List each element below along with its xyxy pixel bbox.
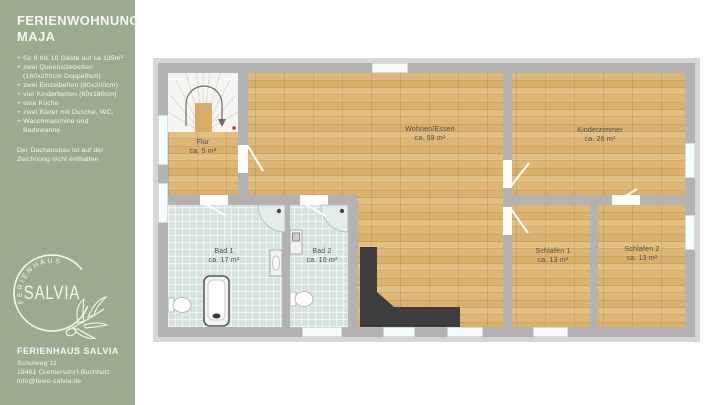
room-name: Bad 1 — [179, 248, 269, 257]
window-bottom-kueche — [383, 327, 415, 337]
room-area: ca. 59 m² — [385, 135, 475, 144]
wall-bad1-bad2 — [282, 205, 290, 327]
door-kinderzimmer — [503, 160, 512, 188]
window-bottom-wohnen — [447, 327, 483, 337]
wall-wohnen-kinder-mid — [503, 188, 512, 207]
room-area: ca. 13 m² — [597, 255, 687, 264]
room-name: Schlafen 1 — [508, 248, 598, 257]
wall-flur-wohnen-upper — [238, 73, 248, 145]
room-area: ca. 5 m² — [158, 148, 248, 157]
floor-plan: Flur ca. 5 m² Wohnen/Essen ca. 59 m² Kin… — [0, 0, 720, 405]
room-name: Wohnen/Essen — [385, 126, 475, 135]
room-label-schlafen-2: Schlafen 2 ca. 13 m² — [597, 246, 687, 263]
wall-wohnen-kinder-upper — [503, 73, 512, 160]
room-area: ca. 26 m² — [555, 136, 645, 145]
wall-kinder-bottom-a — [512, 195, 612, 205]
room-area: ca. 13 m² — [508, 257, 598, 266]
room-label-kinderzimmer: Kinderzimmer ca. 26 m² — [555, 127, 645, 144]
room-name: Kinderzimmer — [555, 127, 645, 136]
room-label-bad-2: Bad 2 ca. 10 m² — [277, 248, 367, 265]
room-area: ca. 10 m² — [277, 257, 367, 266]
door-bad1 — [200, 195, 228, 205]
room-label-bad-1: Bad 1 ca. 17 m² — [179, 248, 269, 265]
window-right-schlafen2 — [685, 215, 695, 250]
room-area: ca. 17 m² — [179, 257, 269, 266]
room-name: Flur — [158, 139, 248, 148]
wall-schlafen1-schlafen2 — [590, 205, 598, 327]
room-label-schlafen-1: Schlafen 1 ca. 13 m² — [508, 248, 598, 265]
door-schlafen2 — [612, 195, 640, 205]
wall-kinder-bottom-b — [640, 195, 685, 205]
wall-bath-top-a — [168, 195, 200, 205]
window-bottom-bad2 — [302, 327, 342, 337]
wall-bath-top-b — [228, 195, 300, 205]
room-label-flur: Flur ca. 5 m² — [158, 139, 248, 156]
window-top — [372, 63, 408, 73]
room-name: Bad 2 — [277, 248, 367, 257]
window-left-bad1 — [158, 183, 168, 223]
room-name: Schlafen 2 — [597, 246, 687, 255]
room-label-wohnen-essen: Wohnen/Essen ca. 59 m² — [385, 126, 475, 143]
window-bottom-schlafen1 — [533, 327, 568, 337]
door-schlafen1 — [503, 207, 512, 235]
window-right-kinderzimmer — [685, 143, 695, 178]
bathroom-tile-floor — [168, 205, 348, 327]
staircase-area — [168, 73, 238, 132]
door-bad2 — [300, 195, 328, 205]
